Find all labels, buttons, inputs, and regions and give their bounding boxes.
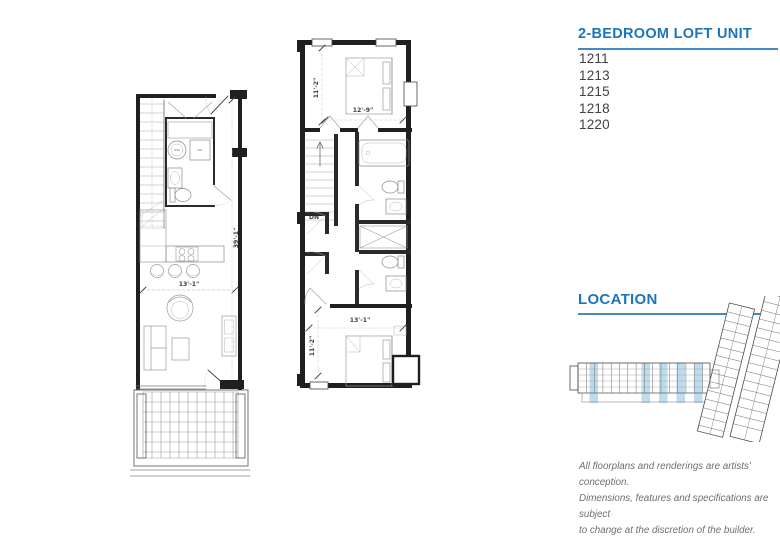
patio [130, 390, 250, 476]
bedroom2-width-label: 13'-1" [350, 317, 371, 324]
first-floor-plan: WSH DRY [130, 88, 252, 480]
exterior-walls [136, 90, 247, 390]
mechanical-bump-out [393, 356, 419, 384]
unit-number: 1211 [579, 51, 610, 68]
bathroom-2 [382, 256, 406, 291]
living-room [144, 295, 236, 370]
tub-icon [359, 140, 409, 166]
bedroom-1: 11'-2" 12'-9" [300, 45, 412, 132]
coffee-table-icon [172, 338, 189, 360]
bed-icon [346, 58, 392, 114]
second-floor-plan: 11'-2" 12'-9" DN [296, 36, 422, 392]
page-title: 2-BEDROOM LOFT UNIT [578, 27, 778, 50]
dim-height-label: 39'-1" [233, 228, 240, 249]
bedroom2-depth-label: 11'-2" [309, 336, 316, 357]
island-counter [166, 246, 224, 262]
bar-stools [151, 265, 200, 278]
unit-number: 1215 [579, 84, 610, 101]
sink-icon [386, 276, 406, 291]
dim-width-label: 13'-1" [179, 281, 200, 288]
unit-number-list: 1211 1213 1215 1218 1220 [579, 51, 610, 134]
toilet-icon [382, 256, 404, 268]
sink-icon [168, 168, 182, 188]
toilet-icon [170, 188, 191, 202]
unit-number: 1213 [579, 68, 610, 85]
toilet-icon [382, 181, 404, 193]
bedroom1-depth-label: 11'-2" [313, 78, 320, 99]
stairs [140, 100, 164, 228]
kitchen [140, 210, 224, 278]
hall-closets [305, 212, 329, 274]
washer-label: WSH [174, 148, 180, 152]
linen-closet [360, 226, 407, 248]
patio-door [136, 370, 244, 389]
location-map [562, 296, 780, 442]
unit-number: 1218 [579, 101, 610, 118]
dryer-label: DRY [197, 148, 203, 152]
bathroom [166, 164, 231, 206]
interior-walls [355, 132, 411, 308]
entry-door [206, 96, 228, 114]
bedroom1-width-label: 12'-9" [353, 107, 374, 114]
console-icon [222, 316, 236, 356]
cooktop-icon [176, 247, 198, 262]
disclaimer-text: All floorplans and renderings are artist… [579, 459, 777, 539]
sofa-icon [144, 326, 166, 370]
bathroom-1 [359, 140, 409, 214]
sink-icon [386, 199, 406, 214]
unit-number: 1220 [579, 117, 610, 134]
laundry-closet: WSH DRY [166, 102, 214, 206]
armchair-icon [167, 295, 193, 321]
